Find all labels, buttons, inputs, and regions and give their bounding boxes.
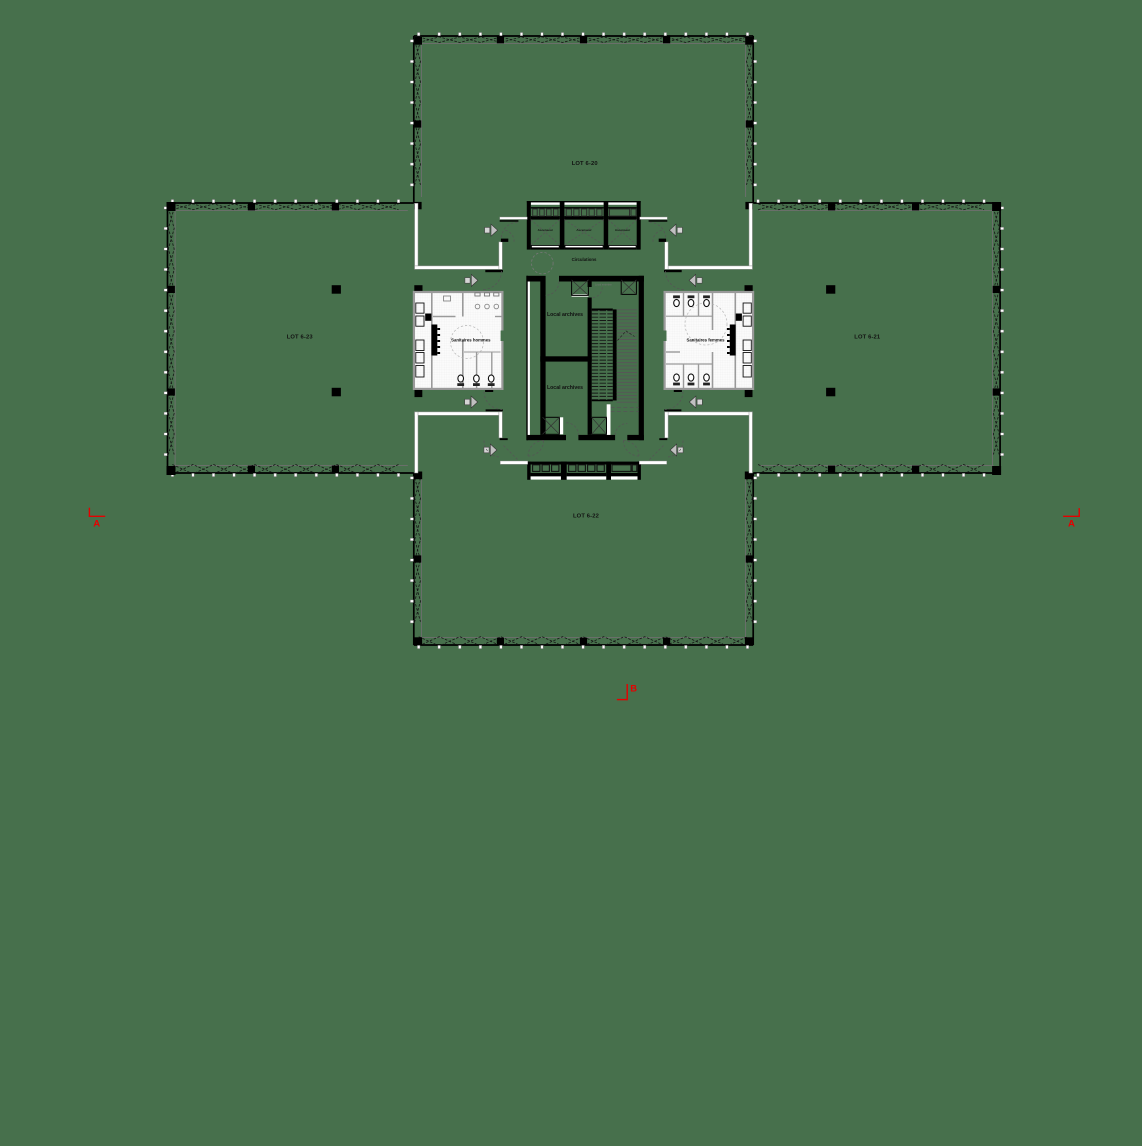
svg-text:LOT 6-23: LOT 6-23 (287, 334, 314, 340)
svg-text:Ascenseur: Ascenseur (538, 228, 554, 232)
svg-text:Ascenseur: Ascenseur (615, 228, 631, 232)
svg-text:A: A (93, 518, 100, 529)
svg-text:A: A (1068, 518, 1075, 529)
svg-text:Local archives: Local archives (547, 312, 583, 318)
svg-text:Ascenseur: Ascenseur (576, 228, 592, 232)
svg-text:LOT 6-20: LOT 6-20 (572, 161, 598, 167)
svg-text:LOT 6-22: LOT 6-22 (573, 514, 599, 520)
svg-text:Sanitaires hommes: Sanitaires hommes (451, 337, 491, 342)
svg-text:B: B (630, 683, 637, 694)
svg-text:Circulations: Circulations (572, 257, 597, 262)
svg-text:Local entretien: Local entretien (595, 283, 613, 287)
svg-text:Local archives: Local archives (547, 385, 583, 391)
svg-text:LOT 6-21: LOT 6-21 (854, 334, 881, 340)
svg-text:Sanitaires femmes: Sanitaires femmes (687, 337, 726, 342)
